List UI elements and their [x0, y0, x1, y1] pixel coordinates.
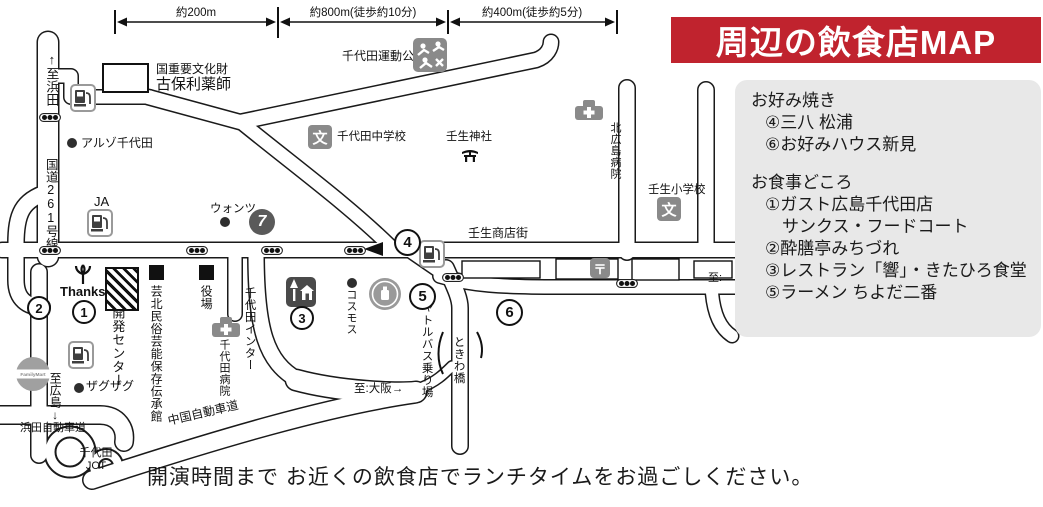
traffic-signal-icon [39, 246, 61, 255]
map-marker-5: 5 [409, 283, 436, 310]
label-mibu-elementary: 壬生小学校 [648, 184, 706, 198]
road-surfaces [0, 42, 738, 480]
label-wants: ウォンツ [210, 203, 256, 217]
seven-glyph: 7 [258, 213, 267, 231]
label-route261: 国道261号線 [43, 158, 58, 250]
label-kohori-yakushi: 古保利薬師 [156, 76, 231, 94]
restaurant-map-page: 約200m 約800m(徒歩約10分) 約400m(徒歩約5分) 周辺の飲食店M… [0, 0, 1043, 507]
post-office-icon: 〒 [590, 258, 610, 278]
marker-number: 4 [403, 234, 411, 251]
scale-segment-label: 約800m(徒歩約10分) [310, 4, 417, 20]
school-icon: 文 [308, 125, 332, 149]
map-title-banner: 周辺の飲食店MAP [671, 17, 1041, 63]
page-title: 周辺の飲食店MAP [716, 16, 996, 64]
bottom-caption: 開演時間まで お近くの飲食店でランチタイムをお過ごしください。 [147, 461, 813, 491]
legend-item: ⑤ラーメン ちよだ二番 [751, 282, 1025, 304]
map-marker-6: 6 [496, 299, 523, 326]
map-marker-4: 4 [394, 229, 421, 256]
label-aruzo: アルゾ千代田 [81, 136, 153, 150]
facility-house-icon [285, 276, 317, 308]
label-cosmos: コスモス [344, 289, 357, 335]
traffic-signal-icon [261, 246, 283, 255]
legend-heading-okonomiyaki: お好み焼き [751, 90, 1025, 112]
school-icon: 文 [657, 197, 681, 221]
map-marker-3: 3 [290, 306, 314, 330]
store-dot-zagzag [74, 383, 84, 393]
legend-item: ③レストラン「響」・きたひろ食堂 [751, 260, 1025, 282]
label-junior-high: 千代田中学校 [337, 131, 406, 145]
restaurant-legend: お好み焼き ④三八 松浦 ⑥お好みハウス新見 お食事どころ ①ガスト広島千代田店… [735, 80, 1041, 337]
map-marker-2: 2 [27, 296, 51, 320]
kohori-temple-building [103, 64, 148, 92]
marker-number: 5 [418, 288, 426, 305]
label-chiyoda-jct: 千代田 JCT [72, 447, 120, 473]
sports-park-icon [412, 37, 448, 73]
store-dot-aruzo [67, 138, 77, 148]
scale-segment-label: 約400m(徒歩約5分) [482, 4, 582, 20]
gas-station-icon [68, 341, 94, 369]
post-glyph: 〒 [593, 259, 606, 278]
label-zagzag: ザグザグ [86, 379, 134, 393]
label-to-hamada: ↑至浜田 [44, 52, 59, 106]
label-town-office: 役場 [199, 285, 213, 310]
gas-station-icon [70, 84, 96, 112]
facility-square-town-office [199, 265, 214, 280]
scale-segment-label: 約200m [176, 4, 216, 20]
facility-square-museum [149, 265, 164, 280]
label-development-center: 開発センター [110, 306, 125, 387]
traffic-signal-icon [616, 279, 638, 288]
label-ja: JA [94, 194, 109, 209]
development-center-building [105, 267, 139, 311]
seven-eleven-icon: 7 [249, 209, 275, 235]
school-glyph: 文 [661, 199, 676, 220]
label-chiyoda-hospital: 千代田病院 [217, 339, 230, 397]
label-geihoku-folk-museum: 芸北民俗芸能保存伝承館 [149, 285, 163, 423]
shopping-block [632, 259, 679, 280]
label-mibu-shrine: 壬生神社 [446, 131, 492, 145]
legend-heading-restaurants: お食事どころ [751, 172, 1025, 194]
label-tokiwa-bridge: ときわ橋 [451, 336, 465, 384]
hospital-icon [574, 99, 604, 121]
label-hamada-expressway: 浜田自動車道 [20, 422, 86, 435]
legend-item: ②酔膳亭みちづれ [751, 238, 1025, 260]
shopping-block [462, 261, 540, 278]
label-kitahiroshima-hospital: 北広島病院 [608, 122, 621, 180]
traffic-signal-icon [344, 246, 366, 255]
label-thanks-store: Thanks [60, 284, 106, 299]
familymart-logo: FamilyMart [15, 356, 51, 392]
traffic-signal-icon [442, 273, 464, 282]
thanks-palm-icon [72, 264, 94, 286]
store-dot-cosmos [347, 278, 357, 288]
school-glyph: 文 [312, 127, 327, 148]
marker-number: 1 [80, 305, 87, 320]
label-mibu-shopping-street: 壬生商店街 [468, 226, 528, 240]
marker-number: 3 [298, 311, 305, 326]
legend-item: ④三八 松浦 [751, 112, 1025, 134]
label-to-osaka: 至:大阪→ [354, 383, 403, 397]
marker-number: 6 [505, 304, 513, 321]
label-kohori-heritage: 国重要文化財 [156, 62, 228, 76]
legend-item: ⑥お好みハウス新見 [751, 134, 1025, 156]
store-logo-icon [368, 277, 402, 311]
gas-station-icon [419, 240, 445, 268]
store-dot-wants [220, 217, 230, 227]
label-to-cutoff: 至: [708, 272, 722, 285]
traffic-signal-icon [186, 246, 208, 255]
marker-number: 2 [35, 301, 42, 316]
label-chiyoda-inter: 千代田インター [242, 287, 256, 371]
map-marker-1: 1 [72, 300, 96, 324]
familymart-label: FamilyMart [20, 372, 46, 378]
gas-station-icon [87, 209, 113, 237]
legend-item: サンクス・フードコート [751, 216, 1025, 238]
torii-shrine-icon [461, 147, 479, 162]
hospital-icon [211, 316, 241, 338]
traffic-signal-icon [39, 113, 61, 122]
legend-item: ①ガスト広島千代田店 [751, 194, 1025, 216]
bridge-mark [477, 332, 482, 358]
